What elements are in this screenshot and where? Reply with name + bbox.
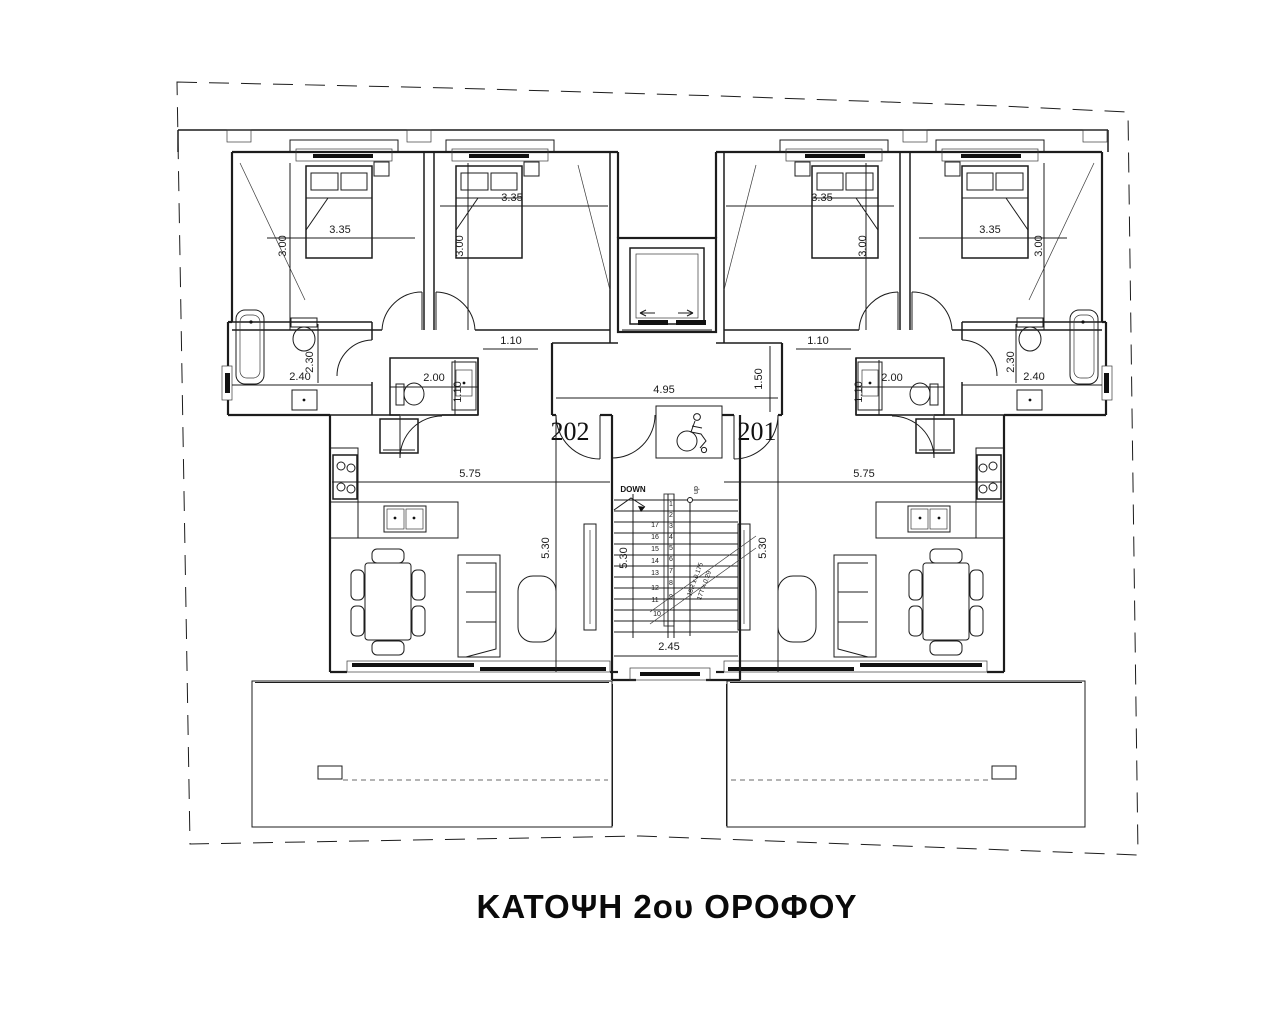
hall: [552, 343, 782, 415]
svg-text:4: 4: [669, 534, 673, 541]
stair-step-numbers: 17 16 15 14 13 12 11 10 1 2 3 4 5 6 7 8 …: [651, 501, 673, 618]
dim-label: 2.30: [304, 351, 316, 372]
dim-label: 2.00: [423, 372, 444, 384]
svg-text:13: 13: [651, 570, 659, 577]
dim-label: 2.30: [1005, 351, 1017, 372]
apartment-201: [716, 140, 1112, 672]
svg-text:5: 5: [669, 545, 673, 552]
dim-label: 3.35: [329, 224, 350, 236]
dim-label: 5.75: [459, 468, 480, 480]
elevator-door-arrows: [640, 310, 693, 316]
dim-label: 5.75: [853, 468, 874, 480]
dim-label: 3.00: [277, 235, 289, 256]
svg-text:2: 2: [669, 512, 673, 519]
stair-up-label: dn: [692, 486, 699, 494]
svg-text:15: 15: [651, 546, 659, 553]
drawing-title: ΚΑΤΟΨΗ 2ου ΟΡΟΦΟΥ: [477, 888, 858, 925]
dim-label: 1.10: [807, 335, 828, 347]
wheelchair-area: [656, 406, 722, 458]
svg-text:17: 17: [651, 522, 659, 529]
balcony-right: [727, 681, 1085, 827]
dim-label: 2.00: [881, 372, 902, 384]
svg-text:9: 9: [669, 594, 673, 601]
apartment-number-201: 201: [738, 417, 777, 446]
stair-window: [612, 668, 740, 680]
dim-label: 1.10: [853, 381, 865, 402]
svg-text:10: 10: [653, 611, 661, 618]
svg-text:16: 16: [651, 534, 659, 541]
stair-down-label: DOWN: [620, 485, 646, 494]
dim-label: 2.45: [658, 641, 679, 653]
dimension-labels: 3.35 3.00 3.35 3.00 2.40 2.30 2.00 1.10 …: [277, 192, 1045, 653]
stair-labels: DOWN dn 18R x 0.175 17T x 0.29 17 16 15 …: [620, 485, 713, 618]
dim-label: 3.00: [1033, 235, 1045, 256]
apartment-202: [222, 140, 618, 672]
dim-label: 5.30: [618, 547, 630, 568]
apartment-number-202: 202: [551, 417, 590, 446]
wheelchair-icon: [677, 414, 707, 453]
balcony-left: [252, 681, 612, 827]
dim-label: 3.35: [811, 192, 832, 204]
svg-text:6: 6: [669, 556, 673, 563]
elevator: [618, 238, 716, 332]
svg-text:1: 1: [669, 501, 673, 508]
stairwell: [612, 415, 756, 826]
dim-label: 3.35: [501, 192, 522, 204]
dim-label: 3.35: [979, 224, 1000, 236]
svg-text:7: 7: [669, 568, 673, 575]
dim-label: 2.40: [1023, 371, 1044, 383]
dim-label: 5.30: [540, 537, 552, 558]
apartment-numbers: 202 201: [551, 417, 777, 446]
svg-text:14: 14: [651, 558, 659, 565]
svg-text:3: 3: [669, 523, 673, 530]
svg-text:8: 8: [669, 580, 673, 587]
floor-plan-page: 3.35 3.00 3.35 3.00 2.40 2.30 2.00 1.10 …: [0, 0, 1280, 1024]
dim-label: 4.95: [653, 384, 674, 396]
svg-text:12: 12: [651, 585, 659, 592]
dim-label: 3.00: [857, 235, 869, 256]
floor-plan-drawing: 3.35 3.00 3.35 3.00 2.40 2.30 2.00 1.10 …: [0, 0, 1280, 1024]
dim-label: 1.10: [452, 381, 464, 402]
dim-label: 1.10: [500, 335, 521, 347]
svg-text:11: 11: [651, 597, 658, 604]
dim-label: 3.00: [454, 235, 466, 256]
dim-label: 5.30: [757, 537, 769, 558]
dim-label: 1.50: [753, 368, 765, 389]
